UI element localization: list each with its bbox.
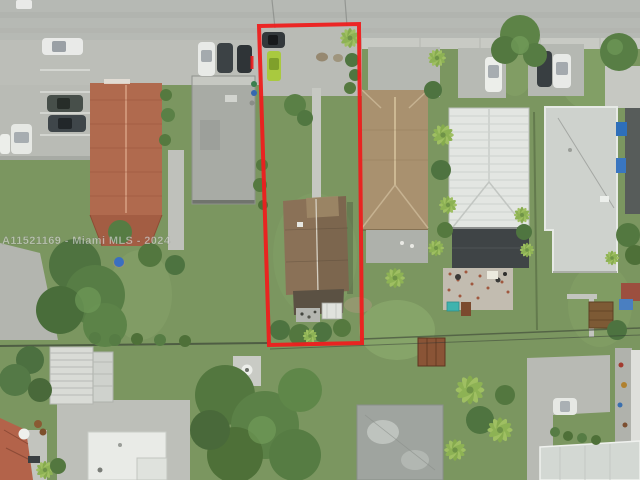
white-flat-house-bottom [88, 432, 167, 480]
aerial-photo: A11521169 - Miami MLS - 2024 [0, 0, 640, 480]
side-alley [615, 348, 632, 448]
blue-trash-bin [114, 257, 124, 267]
bottom-right-roof [540, 441, 640, 480]
car-white-partial [0, 134, 10, 154]
tan-roof-house [362, 90, 428, 263]
walkway-left [168, 150, 184, 250]
car-dark-3 [237, 45, 252, 73]
weathered-roof-building [357, 405, 443, 480]
patio-umbrella-table [19, 429, 30, 440]
terracotta-apartment-building [90, 79, 162, 246]
car-suv-dark-1 [217, 43, 233, 73]
tan-house-patio [366, 230, 428, 263]
aerial-photo-stage: A11521169 - Miami MLS - 2024 [0, 0, 640, 480]
mls-watermark: A11521169 - Miami MLS - 2024 [2, 235, 171, 247]
tiled-patio [443, 268, 513, 316]
patio-mat [461, 302, 471, 316]
gray-flat-building [192, 76, 255, 204]
round-tree-top-right [600, 33, 638, 71]
blue-bin-2 [616, 158, 626, 173]
subject-rear-pad [296, 308, 320, 322]
subject-shed [322, 303, 342, 319]
red-canopy [621, 283, 640, 301]
subject-walkway [312, 88, 321, 202]
carport [50, 347, 113, 404]
patio-table [487, 271, 498, 279]
motorcycle [28, 456, 40, 463]
blue-tarp [619, 299, 633, 310]
right-flat-roof-building [545, 107, 617, 272]
kiddie-pool [447, 302, 459, 311]
blue-bin-1 [616, 122, 627, 136]
car-white-top-edge [16, 0, 32, 9]
